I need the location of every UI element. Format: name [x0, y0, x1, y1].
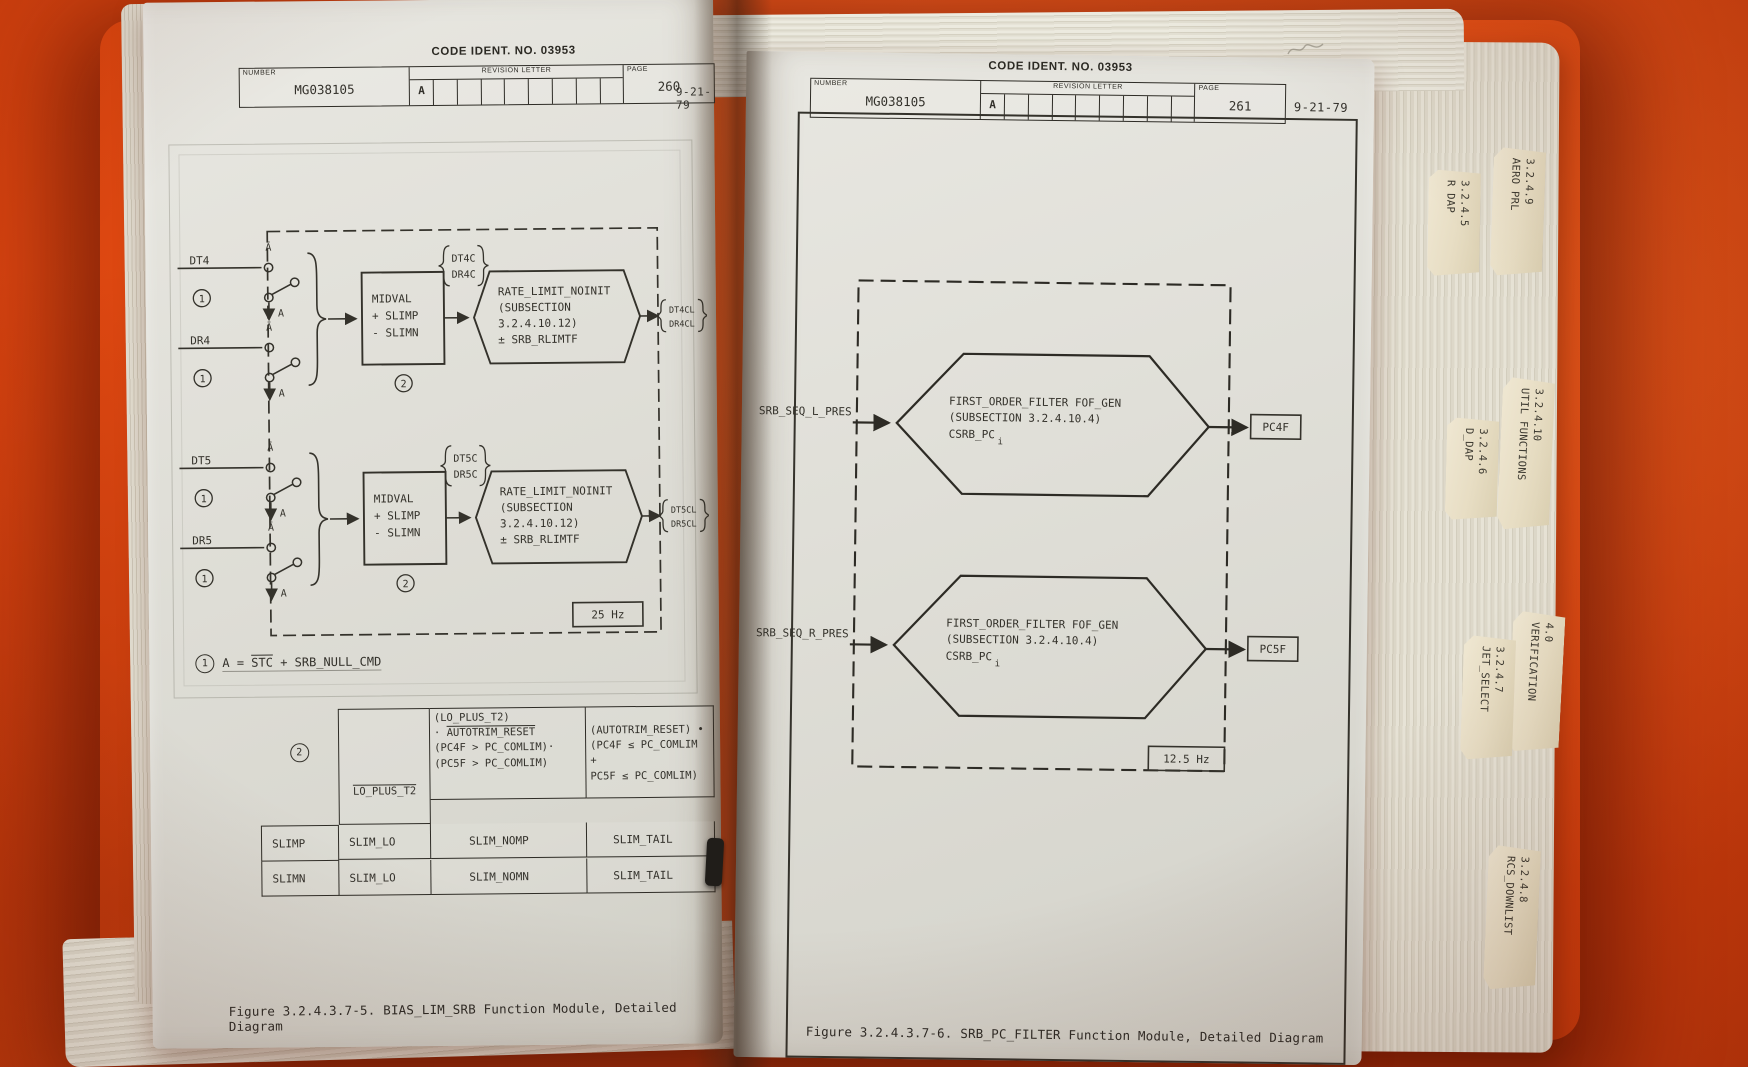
svg-text:1: 1 [201, 494, 207, 505]
filter-right-channel: SRB_SEQ_R_PRES FIRST_ORDER_FILTER FOF_GE… [755, 573, 1299, 720]
svg-text:MIDVAL: MIDVAL [374, 492, 414, 505]
svg-text:CSRB_PC: CSRB_PC [949, 428, 996, 442]
svg-text:RATE_LIMIT_NOINIT: RATE_LIMIT_NOINIT [500, 484, 613, 498]
grouping-brace [309, 453, 328, 585]
svg-text:(SUBSECTION: (SUBSECTION [500, 501, 573, 515]
svg-text:1: 1 [199, 294, 205, 305]
number-value: MG038105 [811, 93, 980, 110]
subscript-i: i [997, 437, 1003, 447]
note-1: 1 A = STC + SRB_NULL_CMD [195, 653, 381, 674]
code-ident-left: CODE IDENT. NO. 03953 [431, 45, 575, 58]
tab-section: 3.2.4.6 [1475, 428, 1490, 475]
svg-text:2: 2 [403, 579, 409, 590]
brace-open [438, 246, 449, 286]
revision-label: REVISION LETTER [410, 66, 623, 75]
tab-jet-select: 3.2.4.7 JET_SELECT [1460, 635, 1516, 761]
pre-label-dr4c: DR4C [452, 270, 476, 281]
number-label: NUMBER [243, 69, 276, 76]
svg-text:CSRB_PC: CSRB_PC [946, 650, 993, 664]
svg-text:FIRST_ORDER_FILTER FOF_GEN: FIRST_ORDER_FILTER FOF_GEN [946, 617, 1118, 632]
input-label-dt4: DT4 [189, 254, 209, 267]
svg-text:3.2.4.10.12): 3.2.4.10.12) [500, 517, 580, 531]
tab-section: 3.2.4.9 [1521, 158, 1537, 211]
pre-label-dr5c: DR5C [453, 470, 477, 481]
svg-text:MIDVAL: MIDVAL [372, 292, 412, 305]
figure-caption-left: Figure 3.2.4.3.7-5. BIAS_LIM_SRB Functio… [229, 999, 723, 1034]
page-label: PAGE [627, 66, 648, 73]
svg-text:± SRB_RLIMTF: ± SRB_RLIMTF [498, 333, 578, 347]
tab-label: R DAP [1443, 180, 1458, 227]
number-label: NUMBER [814, 80, 847, 87]
tab-label: AERO PRL [1507, 158, 1523, 211]
revision-boxes: A [410, 77, 623, 105]
svg-text:FIRST_ORDER_FILTER FOF_GEN: FIRST_ORDER_FILTER FOF_GEN [949, 395, 1121, 410]
channel-dt4-dr4: DT4 Ā 1 A DR4 Ā 1 A MIDVAL + SLIMP - SLI… [177, 236, 708, 400]
svg-text:A: A [281, 588, 287, 599]
out-label-dt5cl: DT5CL [671, 505, 697, 515]
tab-label: JET_SELECT [1477, 646, 1493, 713]
a-label: A [278, 308, 284, 319]
out-label-dt4cl: DT4CL [669, 305, 695, 315]
right-page: CODE IDENT. NO. 03953 NUMBER MG038105 RE… [733, 51, 1374, 1065]
svg-text:- SLIMN: - SLIMN [372, 326, 418, 339]
cell-slimn-2: SLIM_NOMN [431, 859, 587, 895]
tab-section: 3.2.4.7 [1491, 646, 1507, 713]
input-label-dt5: DT5 [191, 454, 211, 467]
date-right: 9-21-79 [1294, 100, 1348, 115]
left-page: CODE IDENT. NO. 03953 NUMBER MG038105 RE… [143, 0, 723, 1049]
bias-lim-srb-diagram: DT4 Ā 1 A DR4 Ā 1 A MIDVAL + SLIMP - SLI… [171, 215, 710, 652]
number-cell: NUMBER MG038105 [240, 67, 410, 107]
svg-text:- SLIMN: - SLIMN [374, 526, 420, 539]
revision-cell: REVISION LETTER A [409, 65, 623, 105]
slim-condition-table: 2 LO_PLUS_T2 (LO_PLUS_T2) · AUTOTRIM_RES… [260, 705, 716, 896]
tab-verification: 4.0 VERIFICATION [1506, 611, 1565, 754]
svg-text:PC4F: PC4F [1262, 421, 1289, 434]
title-block-left: NUMBER MG038105 REVISION LETTER A PAGE 2… [239, 63, 715, 108]
filter-left-channel: SRB_SEQ_L_PRES FIRST_ORDER_FILTER FOF_GE… [758, 351, 1302, 498]
revision-label: REVISION LETTER [981, 82, 1194, 92]
input-label-srb-seq-l-pres: SRB_SEQ_L_PRES [759, 404, 852, 418]
page-label: PAGE [1198, 85, 1219, 92]
svg-text:3.2.4.10.12): 3.2.4.10.12) [498, 317, 578, 331]
svg-text:+ SLIMP: + SLIMP [374, 509, 421, 522]
svg-text:Ā: Ā [266, 321, 272, 334]
svg-text:PC5F: PC5F [1259, 643, 1286, 656]
svg-text:± SRB_RLIMTF: ± SRB_RLIMTF [500, 533, 580, 547]
svg-text:A: A [279, 388, 285, 399]
tab-r-dap: 3.2.4.5 R DAP [1427, 170, 1481, 277]
grouping-brace [307, 253, 326, 385]
row-label-slimp: SLIMP [261, 825, 339, 862]
note2-circle-icon: 2 [290, 743, 309, 762]
pre-label-dt5c: DT5C [453, 454, 477, 465]
svg-text:(SUBSECTION 3.2.4.10.4): (SUBSECTION 3.2.4.10.4) [949, 411, 1101, 426]
tab-section: 3.2.4.5 [1457, 180, 1472, 227]
pre-label-dt4c: DT4C [451, 254, 475, 265]
srb-pc-filter-diagram: SRB_SEQ_L_PRES FIRST_ORDER_FILTER FOF_GE… [751, 263, 1378, 841]
rate-badge: 25 Hz [591, 608, 624, 621]
number-value: MG038105 [240, 81, 409, 98]
input-label-dr4: DR4 [190, 334, 210, 347]
svg-text:(SUBSECTION 3.2.4.10.4): (SUBSECTION 3.2.4.10.4) [946, 633, 1098, 648]
rate-badge: 12.5 Hz [1163, 752, 1210, 766]
revision-value: A [410, 80, 434, 105]
abar-label: Ā [265, 241, 271, 254]
pencil-scribble [1285, 38, 1327, 62]
input-label-dr5: DR5 [192, 534, 212, 547]
row-label-slimn: SLIMN [261, 861, 339, 897]
page-number: 261 [1195, 98, 1285, 114]
tab-util-functions: 3.2.4.10 UTIL FUNCTIONS [1497, 377, 1556, 531]
subscript-i: i [995, 659, 1001, 669]
svg-text:+ SLIMP: + SLIMP [372, 309, 419, 322]
svg-text:2: 2 [401, 379, 407, 390]
channel-dt5-dr5: DT5 Ā 1 A DR5 Ā 1 A MIDVAL + SLIMP - SLI… [179, 436, 710, 600]
col-header-lo-plus-t2: LO_PLUS_T2 [338, 708, 431, 825]
tab-d-dap: 3.2.4.6 D_DAP [1445, 417, 1500, 520]
tab-rcs-downlist: 3.2.4.8 RCS_DOWNLIST [1483, 845, 1541, 991]
cell-slimp-2: SLIM_NOMP [431, 823, 587, 859]
svg-text:(SUBSECTION: (SUBSECTION [498, 301, 571, 315]
cell-slimp-1: SLIM_LO [339, 824, 431, 860]
out-label-dr5cl: DR5CL [671, 519, 697, 529]
svg-text:Ā: Ā [267, 441, 273, 454]
svg-text:A: A [280, 508, 286, 519]
col-header-mid-condition: (LO_PLUS_T2) · AUTOTRIM_RESET (PC4F > PC… [430, 707, 587, 800]
note1-text: A = STC + SRB_NULL_CMD [222, 654, 381, 672]
tab-aero-prl: 3.2.4.9 AERO PRL [1490, 147, 1546, 277]
svg-text:Ā: Ā [268, 521, 274, 534]
out-label-dr4cl: DR4CL [669, 319, 695, 329]
code-ident-right: CODE IDENT. NO. 03953 [988, 60, 1132, 74]
table-note2-cell: 2 [260, 709, 339, 796]
svg-text:1: 1 [201, 574, 207, 585]
svg-text:1: 1 [200, 374, 206, 385]
svg-text:RATE_LIMIT_NOINIT: RATE_LIMIT_NOINIT [498, 284, 611, 298]
tab-label: D_DAP [1461, 428, 1476, 475]
book-gutter-shadow [694, 0, 772, 1067]
brace-open [440, 446, 451, 486]
binder-post [705, 838, 724, 887]
cell-slimn-1: SLIM_LO [339, 860, 431, 896]
note1-circle-icon: 1 [195, 654, 214, 673]
